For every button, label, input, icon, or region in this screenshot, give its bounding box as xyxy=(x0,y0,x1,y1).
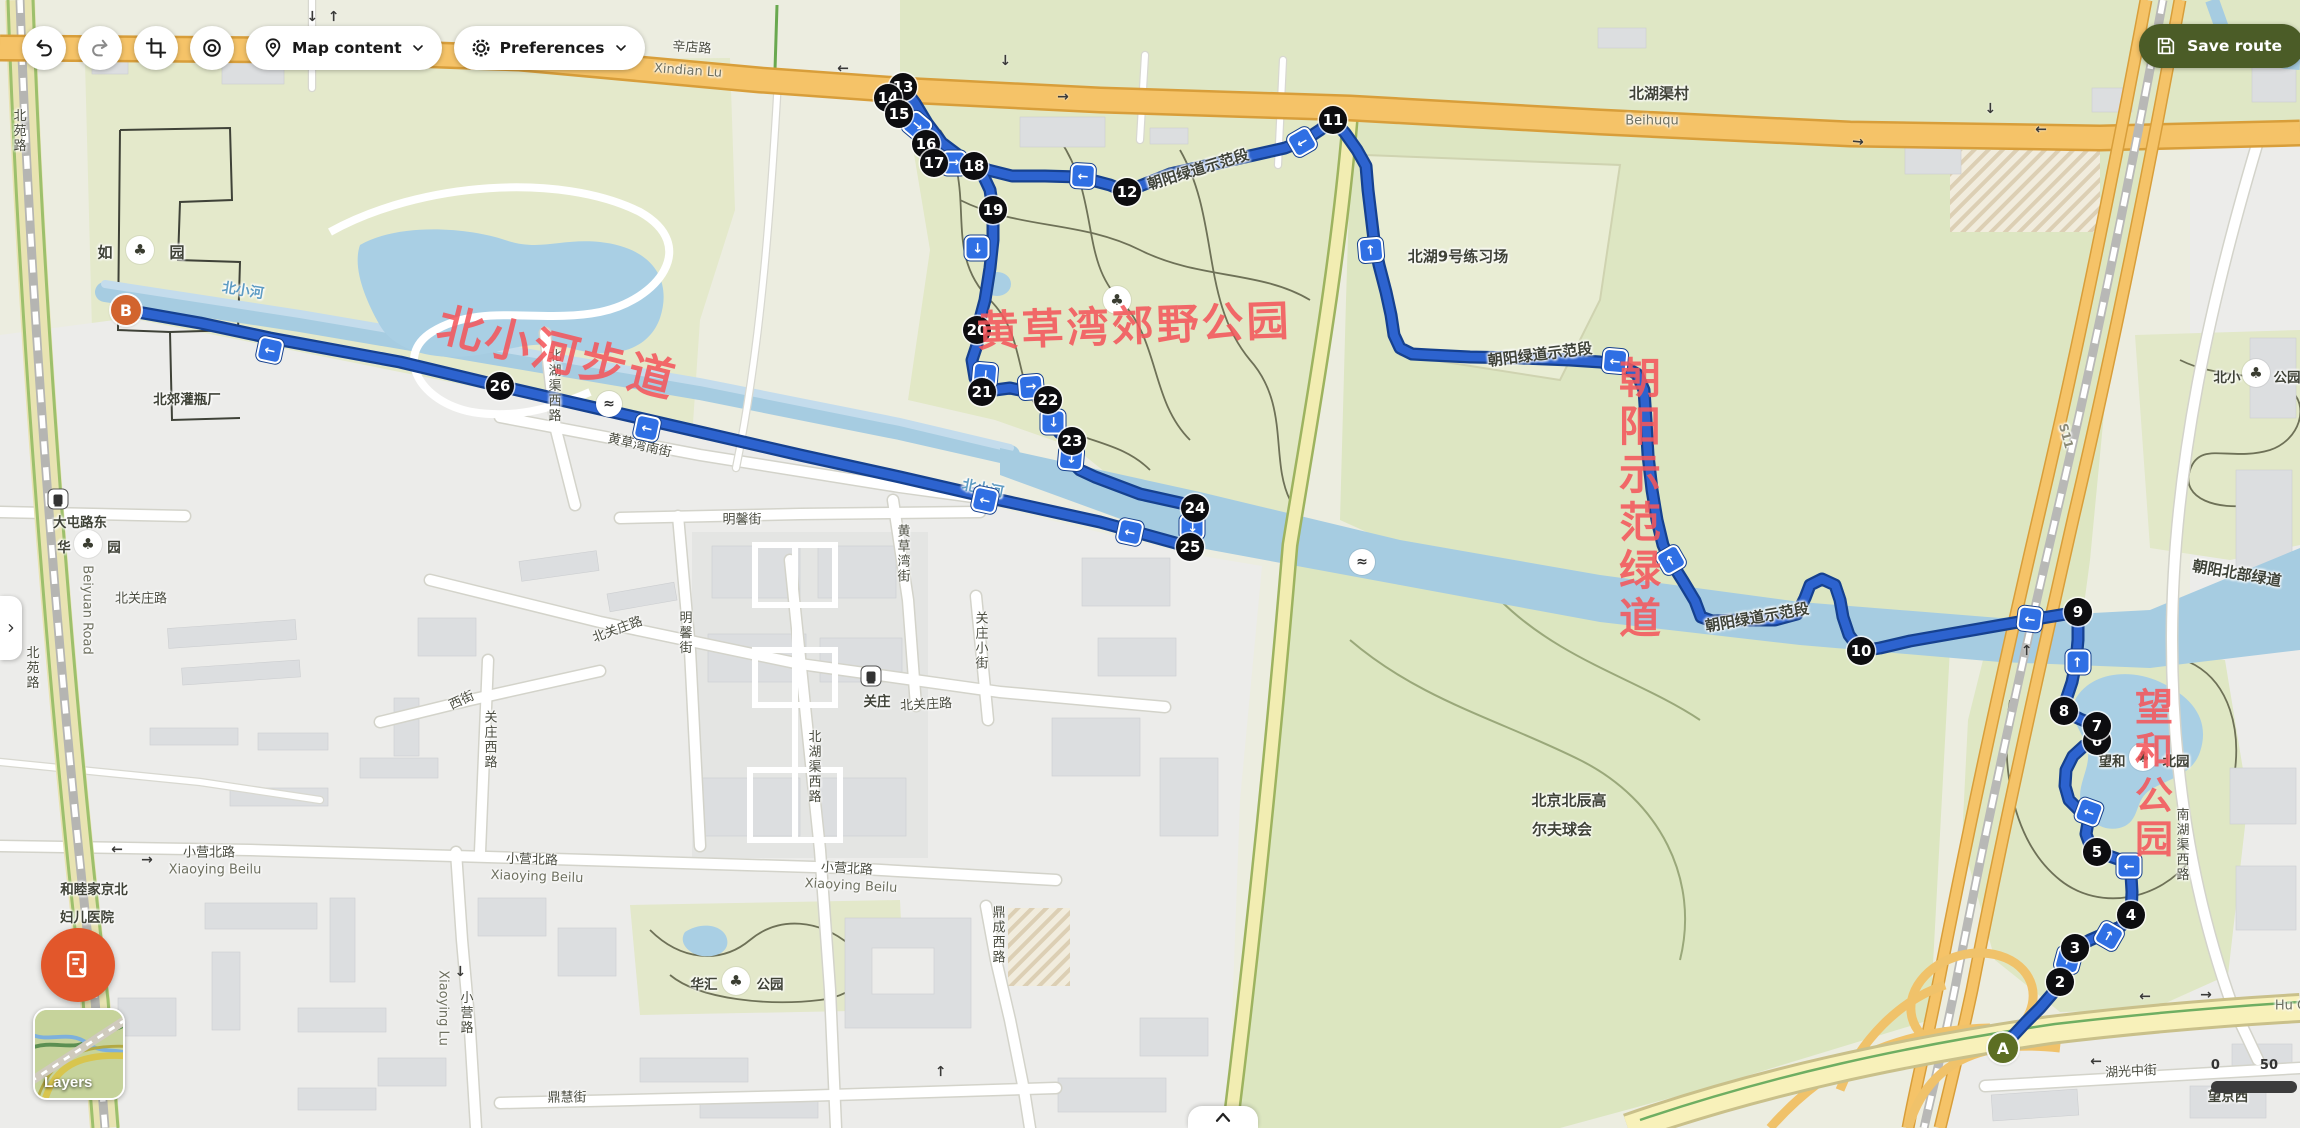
sidebar-expand-tab[interactable] xyxy=(0,596,22,660)
layers-label: Layers xyxy=(44,1074,92,1091)
scale-end: 50 xyxy=(2260,1058,2278,1073)
redo-button[interactable] xyxy=(78,26,122,70)
crop-button[interactable] xyxy=(134,26,178,70)
visibility-button[interactable] xyxy=(190,26,234,70)
preferences-label: Preferences xyxy=(500,39,605,57)
map-canvas[interactable] xyxy=(0,0,2300,1128)
crop-icon xyxy=(145,37,167,59)
undo-button[interactable] xyxy=(22,26,66,70)
gear-icon xyxy=(470,37,492,59)
preferences-button[interactable]: Preferences xyxy=(454,26,645,70)
layers-button[interactable]: Layers xyxy=(33,1008,125,1100)
undo-icon xyxy=(33,37,55,59)
chevron-up-icon xyxy=(1214,1110,1232,1124)
route-notes-icon xyxy=(61,948,95,982)
route-planner-app: 辛店路Xindian Lu北湖渠村Beihuqu北湖9号练习场朝阳绿道示范段朝阳… xyxy=(0,0,2300,1128)
chevron-right-icon xyxy=(6,620,16,636)
map-content-label: Map content xyxy=(292,39,402,57)
route-details-button[interactable] xyxy=(41,928,115,1002)
map-content-button[interactable]: Map content xyxy=(246,26,442,70)
save-icon xyxy=(2155,35,2177,57)
save-route-label: Save route xyxy=(2187,37,2282,55)
bottom-panel-expand-tab[interactable] xyxy=(1188,1106,1258,1128)
scale-bar: 0 50 xyxy=(2211,1058,2300,1093)
redo-icon xyxy=(89,37,111,59)
save-route-button[interactable]: Save route xyxy=(2139,24,2300,68)
scale-bar-line xyxy=(2211,1081,2297,1093)
map-pin-icon xyxy=(262,37,284,59)
chevron-down-icon xyxy=(613,40,629,56)
chevron-down-icon xyxy=(410,40,426,56)
visibility-icon xyxy=(201,37,223,59)
toolbar: Map content Preferences xyxy=(22,26,645,70)
scale-start: 0 xyxy=(2211,1058,2220,1073)
